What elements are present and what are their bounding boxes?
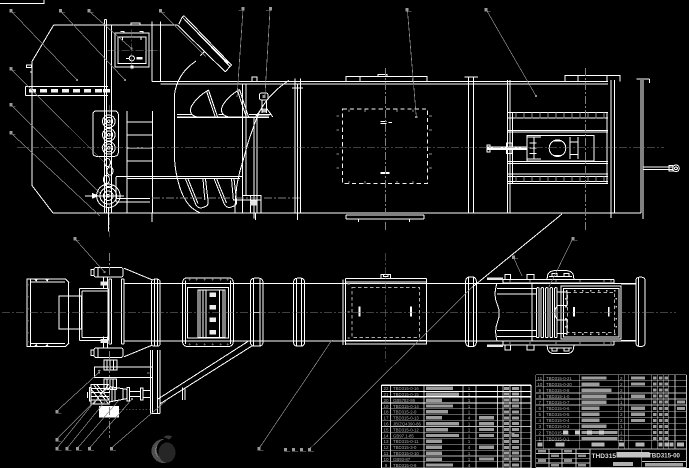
svg-text:1: 1 [468, 439, 471, 444]
svg-text:20: 20 [383, 398, 389, 403]
svg-text:17: 17 [383, 416, 389, 421]
svg-text:TBD315-2-0: TBD315-2-0 [393, 410, 417, 415]
svg-text:11: 11 [384, 451, 389, 456]
svg-text:TBD315-0-3: TBD315-0-3 [546, 424, 570, 429]
svg-text:JB/ZQ4390-86: JB/ZQ4390-86 [393, 422, 422, 427]
svg-text:TBD315-3-0: TBD315-3-0 [393, 445, 417, 450]
svg-text:4: 4 [468, 416, 471, 421]
svg-text:4: 4 [468, 463, 471, 468]
svg-text:2: 2 [620, 382, 623, 387]
svg-text:16: 16 [383, 422, 389, 427]
svg-text:TBD315-0-10: TBD315-0-10 [393, 451, 419, 456]
svg-text:8: 8 [539, 394, 542, 399]
svg-text:12: 12 [383, 445, 389, 450]
svg-text:1: 1 [468, 427, 471, 432]
svg-text:GB93-87: GB93-87 [393, 457, 411, 462]
svg-text:10: 10 [537, 382, 543, 387]
svg-text:4: 4 [468, 445, 471, 450]
svg-text:1: 1 [468, 398, 471, 403]
svg-text:9: 9 [539, 388, 542, 393]
svg-text:TBD315-0-5: TBD315-0-5 [546, 412, 570, 417]
svg-text:19: 19 [383, 404, 389, 409]
svg-text:TBD315-0-20: TBD315-0-20 [546, 382, 572, 387]
svg-text:9: 9 [385, 463, 388, 468]
svg-text:5: 5 [539, 412, 542, 417]
svg-text:15: 15 [383, 427, 389, 432]
svg-text:21: 21 [383, 392, 389, 397]
svg-text:TBD315-0-8: TBD315-0-8 [546, 388, 570, 393]
svg-text:1: 1 [468, 386, 471, 391]
svg-text:1: 1 [468, 410, 471, 415]
svg-text:2: 2 [620, 418, 623, 423]
svg-text:1: 1 [468, 433, 471, 438]
svg-text:6: 6 [539, 406, 542, 411]
svg-text:1: 1 [468, 392, 471, 397]
svg-text:14: 14 [383, 433, 389, 438]
svg-text:TBD315-0-12: TBD315-0-12 [393, 427, 419, 432]
svg-text:TBD315-0-9: TBD315-0-9 [393, 463, 417, 468]
svg-text:2: 2 [620, 436, 623, 441]
svg-text:11: 11 [537, 376, 542, 381]
svg-text:1: 1 [468, 457, 471, 462]
svg-text:TBD315-0-16: TBD315-0-16 [393, 386, 419, 391]
svg-text:1: 1 [620, 394, 623, 399]
svg-text:TBD315-1-0: TBD315-1-0 [546, 394, 570, 399]
svg-text:TBD315-0-13: TBD315-0-13 [393, 416, 419, 421]
svg-text:TBD315-0-1: TBD315-0-1 [546, 436, 570, 441]
svg-text:2: 2 [620, 406, 623, 411]
svg-text:GB5782-86: GB5782-86 [393, 398, 416, 403]
svg-text:1: 1 [539, 436, 542, 441]
svg-text:TBD315-0-14: TBD315-0-14 [393, 404, 419, 409]
svg-text:TBD315-0-21: TBD315-0-21 [546, 376, 572, 381]
svg-text:1: 1 [620, 430, 623, 435]
svg-text:1: 1 [620, 400, 623, 405]
svg-text:THD315: THD315 [592, 453, 617, 460]
svg-text:1: 1 [468, 422, 471, 427]
svg-text:7: 7 [539, 400, 542, 405]
svg-text:TBD315-0-15: TBD315-0-15 [393, 392, 419, 397]
svg-text:1: 1 [468, 404, 471, 409]
svg-text:3: 3 [539, 424, 542, 429]
svg-text:4: 4 [539, 418, 542, 423]
svg-text:TBD315-0-4: TBD315-0-4 [546, 418, 570, 423]
svg-text:18: 18 [383, 410, 389, 415]
svg-text:10: 10 [383, 457, 389, 462]
svg-text:2: 2 [620, 412, 623, 417]
svg-text:2: 2 [620, 376, 623, 381]
svg-text:TBD315-00: TBD315-00 [648, 453, 681, 460]
svg-text:TBD315-0-7: TBD315-0-7 [546, 400, 570, 405]
svg-text:TBD315-0-6: TBD315-0-6 [546, 406, 570, 411]
svg-text:1: 1 [468, 451, 471, 456]
svg-text:TBD315-0-11: TBD315-0-11 [393, 439, 419, 444]
svg-text:1: 1 [620, 424, 623, 429]
svg-text:GB97.1-85: GB97.1-85 [393, 433, 414, 438]
svg-text:2: 2 [620, 388, 623, 393]
svg-text:22: 22 [383, 386, 389, 391]
svg-text:2: 2 [539, 430, 542, 435]
svg-text:13: 13 [383, 439, 389, 444]
